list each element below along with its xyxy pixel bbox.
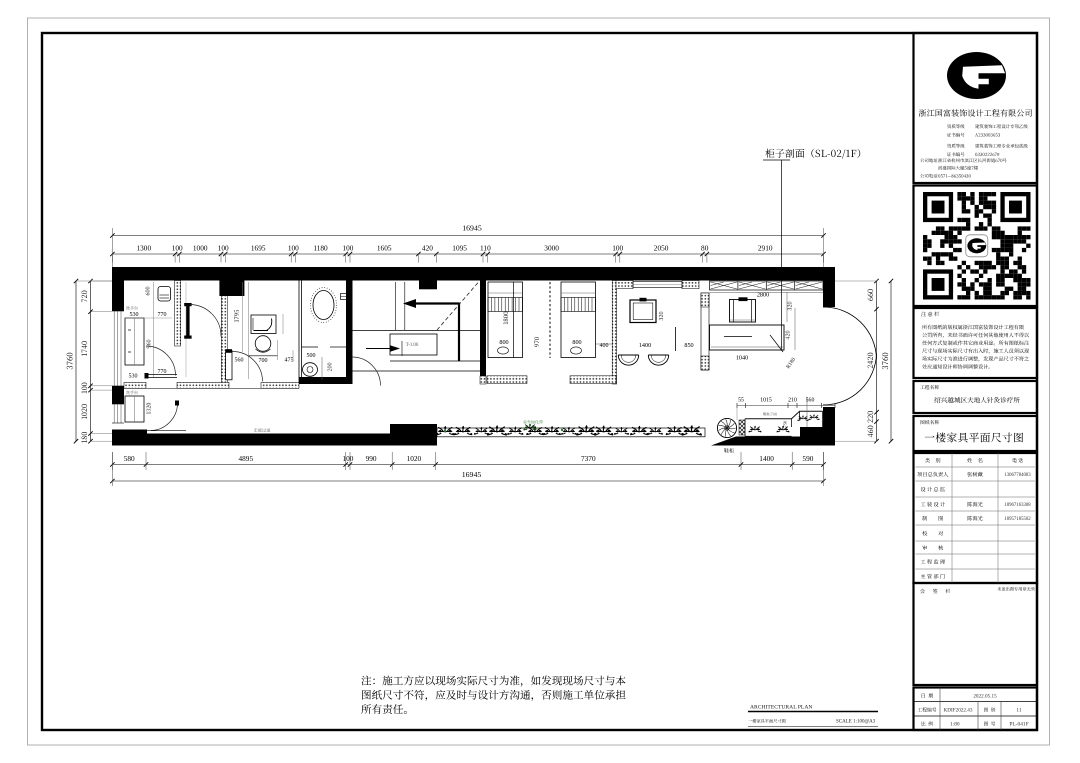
svg-text:100: 100 [218, 244, 229, 253]
svg-text:590: 590 [802, 454, 813, 463]
svg-text:1000: 1000 [193, 244, 208, 253]
svg-text:T-1.06: T-1.06 [406, 343, 419, 348]
svg-text:110: 110 [480, 244, 491, 253]
svg-text:990: 990 [366, 454, 377, 463]
svg-text:1095: 1095 [452, 244, 467, 253]
svg-text:1400: 1400 [759, 454, 774, 463]
svg-text:4895: 4895 [239, 454, 254, 463]
svg-text:100: 100 [342, 454, 353, 463]
svg-text:16945: 16945 [462, 224, 482, 233]
svg-text:SCALE 1:100@A3: SCALE 1:100@A3 [836, 720, 876, 725]
svg-text:7370: 7370 [581, 454, 596, 463]
svg-text:13067784083: 13067784083 [1004, 473, 1031, 478]
svg-text:ARCHITECTURAL PLAN: ARCHITECTURAL PLAN [750, 705, 812, 711]
svg-text:560: 560 [235, 358, 244, 364]
svg-text:580: 580 [124, 454, 135, 463]
svg-text:850: 850 [684, 342, 693, 349]
svg-text:530: 530 [129, 374, 138, 380]
svg-text:18967163308: 18967163308 [1004, 503, 1031, 508]
svg-text:16945: 16945 [462, 470, 482, 479]
svg-text:475: 475 [285, 358, 294, 364]
svg-text:210: 210 [788, 398, 797, 404]
svg-text:420: 420 [422, 244, 433, 253]
svg-text:55: 55 [738, 398, 744, 404]
svg-text:800: 800 [572, 339, 581, 346]
svg-text:11: 11 [1016, 708, 1021, 714]
svg-text:700: 700 [259, 358, 268, 364]
svg-text:2910: 2910 [758, 244, 773, 253]
svg-text:1180: 1180 [313, 244, 328, 253]
svg-text:1015: 1015 [760, 398, 772, 404]
svg-text:18957185502: 18957185502 [1004, 517, 1031, 522]
svg-text:1040: 1040 [736, 355, 748, 362]
svg-text:PL-041F: PL-041F [1009, 722, 1028, 728]
svg-text:800: 800 [499, 339, 508, 346]
svg-text:770: 770 [158, 369, 167, 375]
svg-text:2022.05.15: 2022.05.15 [973, 694, 997, 700]
svg-text:2050: 2050 [654, 244, 669, 253]
svg-text:电 话: 电 话 [1012, 457, 1023, 464]
svg-text:KDIF2022.43: KDIF2022.43 [944, 708, 973, 714]
svg-text:1300: 1300 [137, 244, 152, 253]
svg-text:100: 100 [288, 244, 299, 253]
svg-text:1605: 1605 [377, 244, 392, 253]
svg-text:100: 100 [342, 244, 353, 253]
svg-text:500: 500 [307, 353, 316, 359]
svg-text:1020: 1020 [407, 454, 422, 463]
svg-text:80: 80 [701, 244, 709, 253]
svg-text:1:80: 1:80 [950, 722, 960, 728]
svg-text:530: 530 [130, 312, 139, 318]
svg-text:1695: 1695 [251, 244, 266, 253]
svg-text:3000: 3000 [544, 244, 559, 253]
svg-text:1400: 1400 [639, 342, 651, 349]
svg-text:100: 100 [172, 244, 183, 253]
svg-text:100: 100 [612, 244, 623, 253]
svg-text:770: 770 [158, 312, 167, 318]
